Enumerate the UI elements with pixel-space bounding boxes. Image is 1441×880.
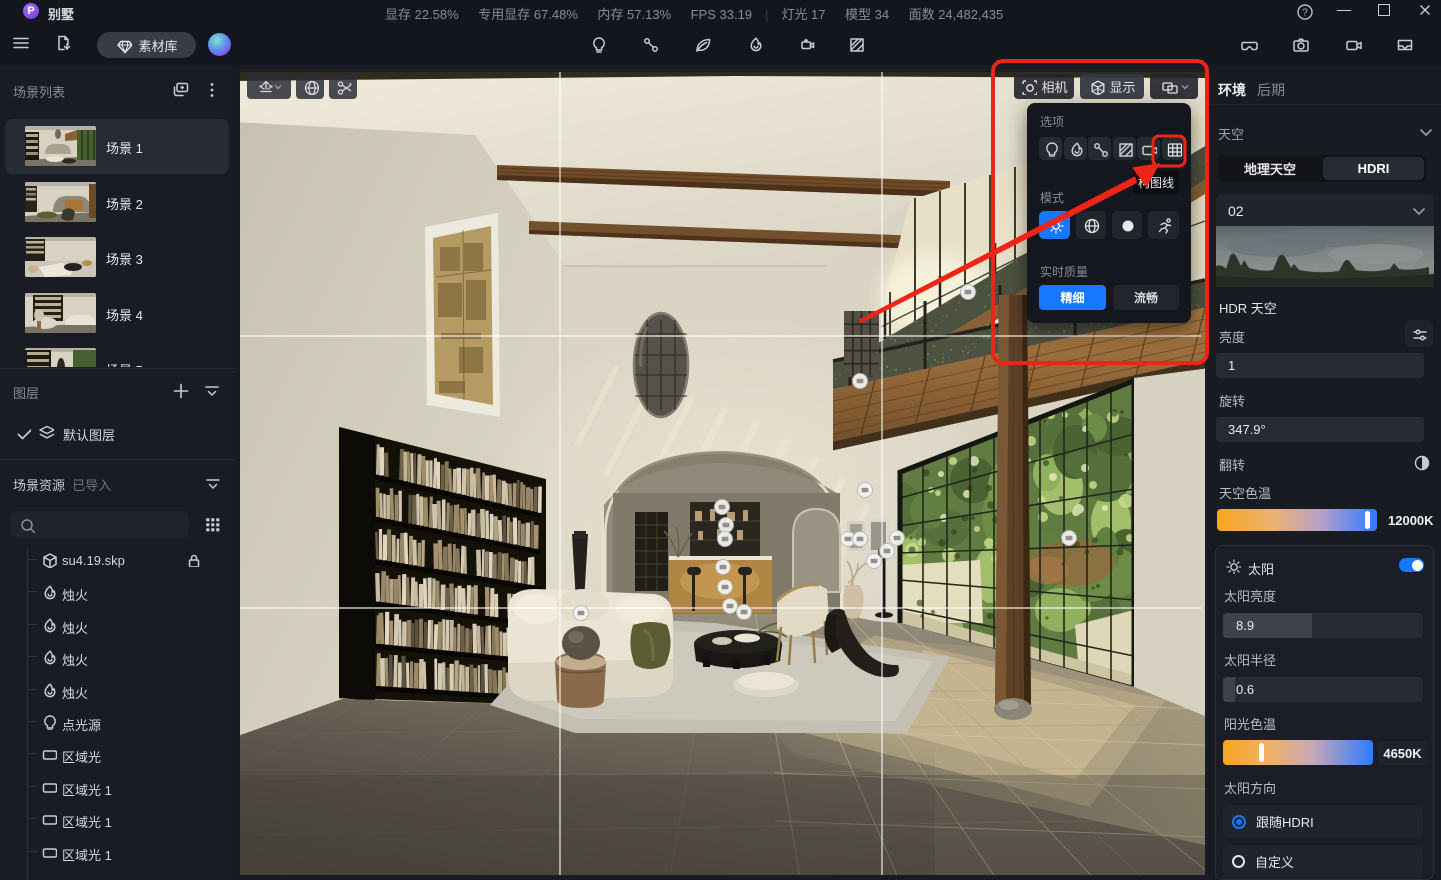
svg-text:?: ? (1302, 8, 1308, 19)
